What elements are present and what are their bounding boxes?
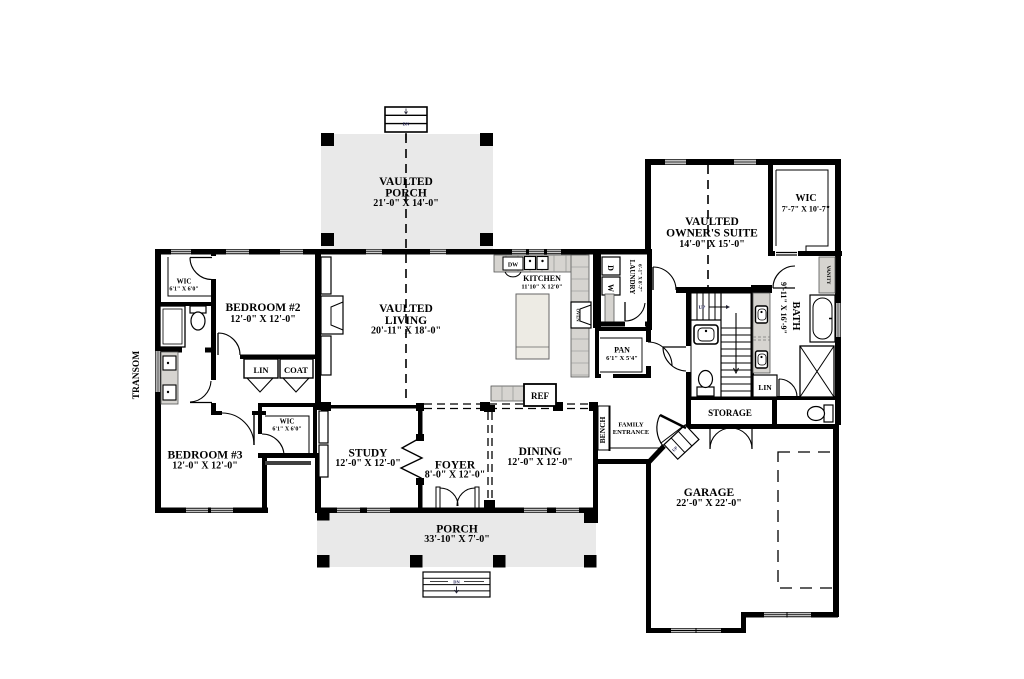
svg-text:ENTRANCE: ENTRANCE [613,429,649,436]
svg-text:UP: UP [699,306,706,311]
svg-text:TRANSOM: TRANSOM [132,351,142,400]
svg-text:VAULTED: VAULTED [379,303,433,315]
svg-text:W: W [606,284,615,292]
svg-text:6'1" X 6'0": 6'1" X 6'0" [272,427,301,433]
svg-text:22'-0" X 22'-0": 22'-0" X 22'-0" [676,498,742,509]
svg-text:11'10" X 12'0": 11'10" X 12'0" [521,284,562,291]
svg-text:FAMILY: FAMILY [618,422,644,429]
svg-text:12'-0" X 12'-0": 12'-0" X 12'-0" [507,457,573,468]
svg-text:PAN: PAN [614,346,630,355]
svg-text:WIC: WIC [177,278,192,286]
svg-text:8'-0" X 12'-0": 8'-0" X 12'-0" [425,470,486,481]
svg-text:BATH: BATH [790,302,801,331]
svg-text:6'-1" X 8'-7": 6'-1" X 8'-7" [637,264,642,292]
svg-text:VAULTED: VAULTED [379,176,433,188]
svg-text:BEDROOM #2: BEDROOM #2 [225,302,300,314]
svg-text:COAT: COAT [284,365,308,375]
svg-text:LIN: LIN [253,365,269,375]
svg-text:14'-0" X 15'-0": 14'-0" X 15'-0" [679,239,745,250]
svg-text:9'-11" X 16'-9": 9'-11" X 16'-9" [779,282,788,334]
svg-text:D: D [606,265,615,271]
svg-text:12'-0" X 12'-0": 12'-0" X 12'-0" [230,314,296,325]
svg-text:6'1" X 5'4": 6'1" X 5'4" [606,355,638,362]
svg-text:VANITY: VANITY [825,265,830,284]
svg-text:7'-7" X 10'-7": 7'-7" X 10'-7" [782,205,830,214]
svg-text:12'-0" X 12'-0": 12'-0" X 12'-0" [335,458,401,469]
svg-text:WIC: WIC [795,193,816,204]
svg-text:LIN: LIN [758,383,772,392]
svg-text:WIC: WIC [280,418,295,426]
svg-text:STORAGE: STORAGE [708,408,752,418]
svg-text:OWNER'S SUITE: OWNER'S SUITE [666,228,758,240]
svg-text:BENCH: BENCH [598,416,607,443]
svg-text:6'1" X 6'0": 6'1" X 6'0" [169,287,198,293]
svg-text:VAULTED: VAULTED [685,216,739,228]
svg-text:33'-10" X 7'-0": 33'-10" X 7'-0" [424,534,490,545]
svg-text:REF: REF [531,391,550,401]
svg-text:21'-0" X 14'-0": 21'-0" X 14'-0" [373,198,439,209]
svg-text:DW: DW [508,263,518,269]
svg-text:LAUNDRY: LAUNDRY [628,260,636,295]
svg-text:20'-11" X 18'-0": 20'-11" X 18'-0" [371,326,441,337]
svg-text:DN: DN [453,580,460,585]
svg-text:12'-0" X 12'-0": 12'-0" X 12'-0" [172,461,238,472]
svg-text:DN: DN [403,122,410,127]
svg-text:OVEN: OVEN [576,308,581,322]
svg-text:KITCHEN: KITCHEN [523,274,561,283]
